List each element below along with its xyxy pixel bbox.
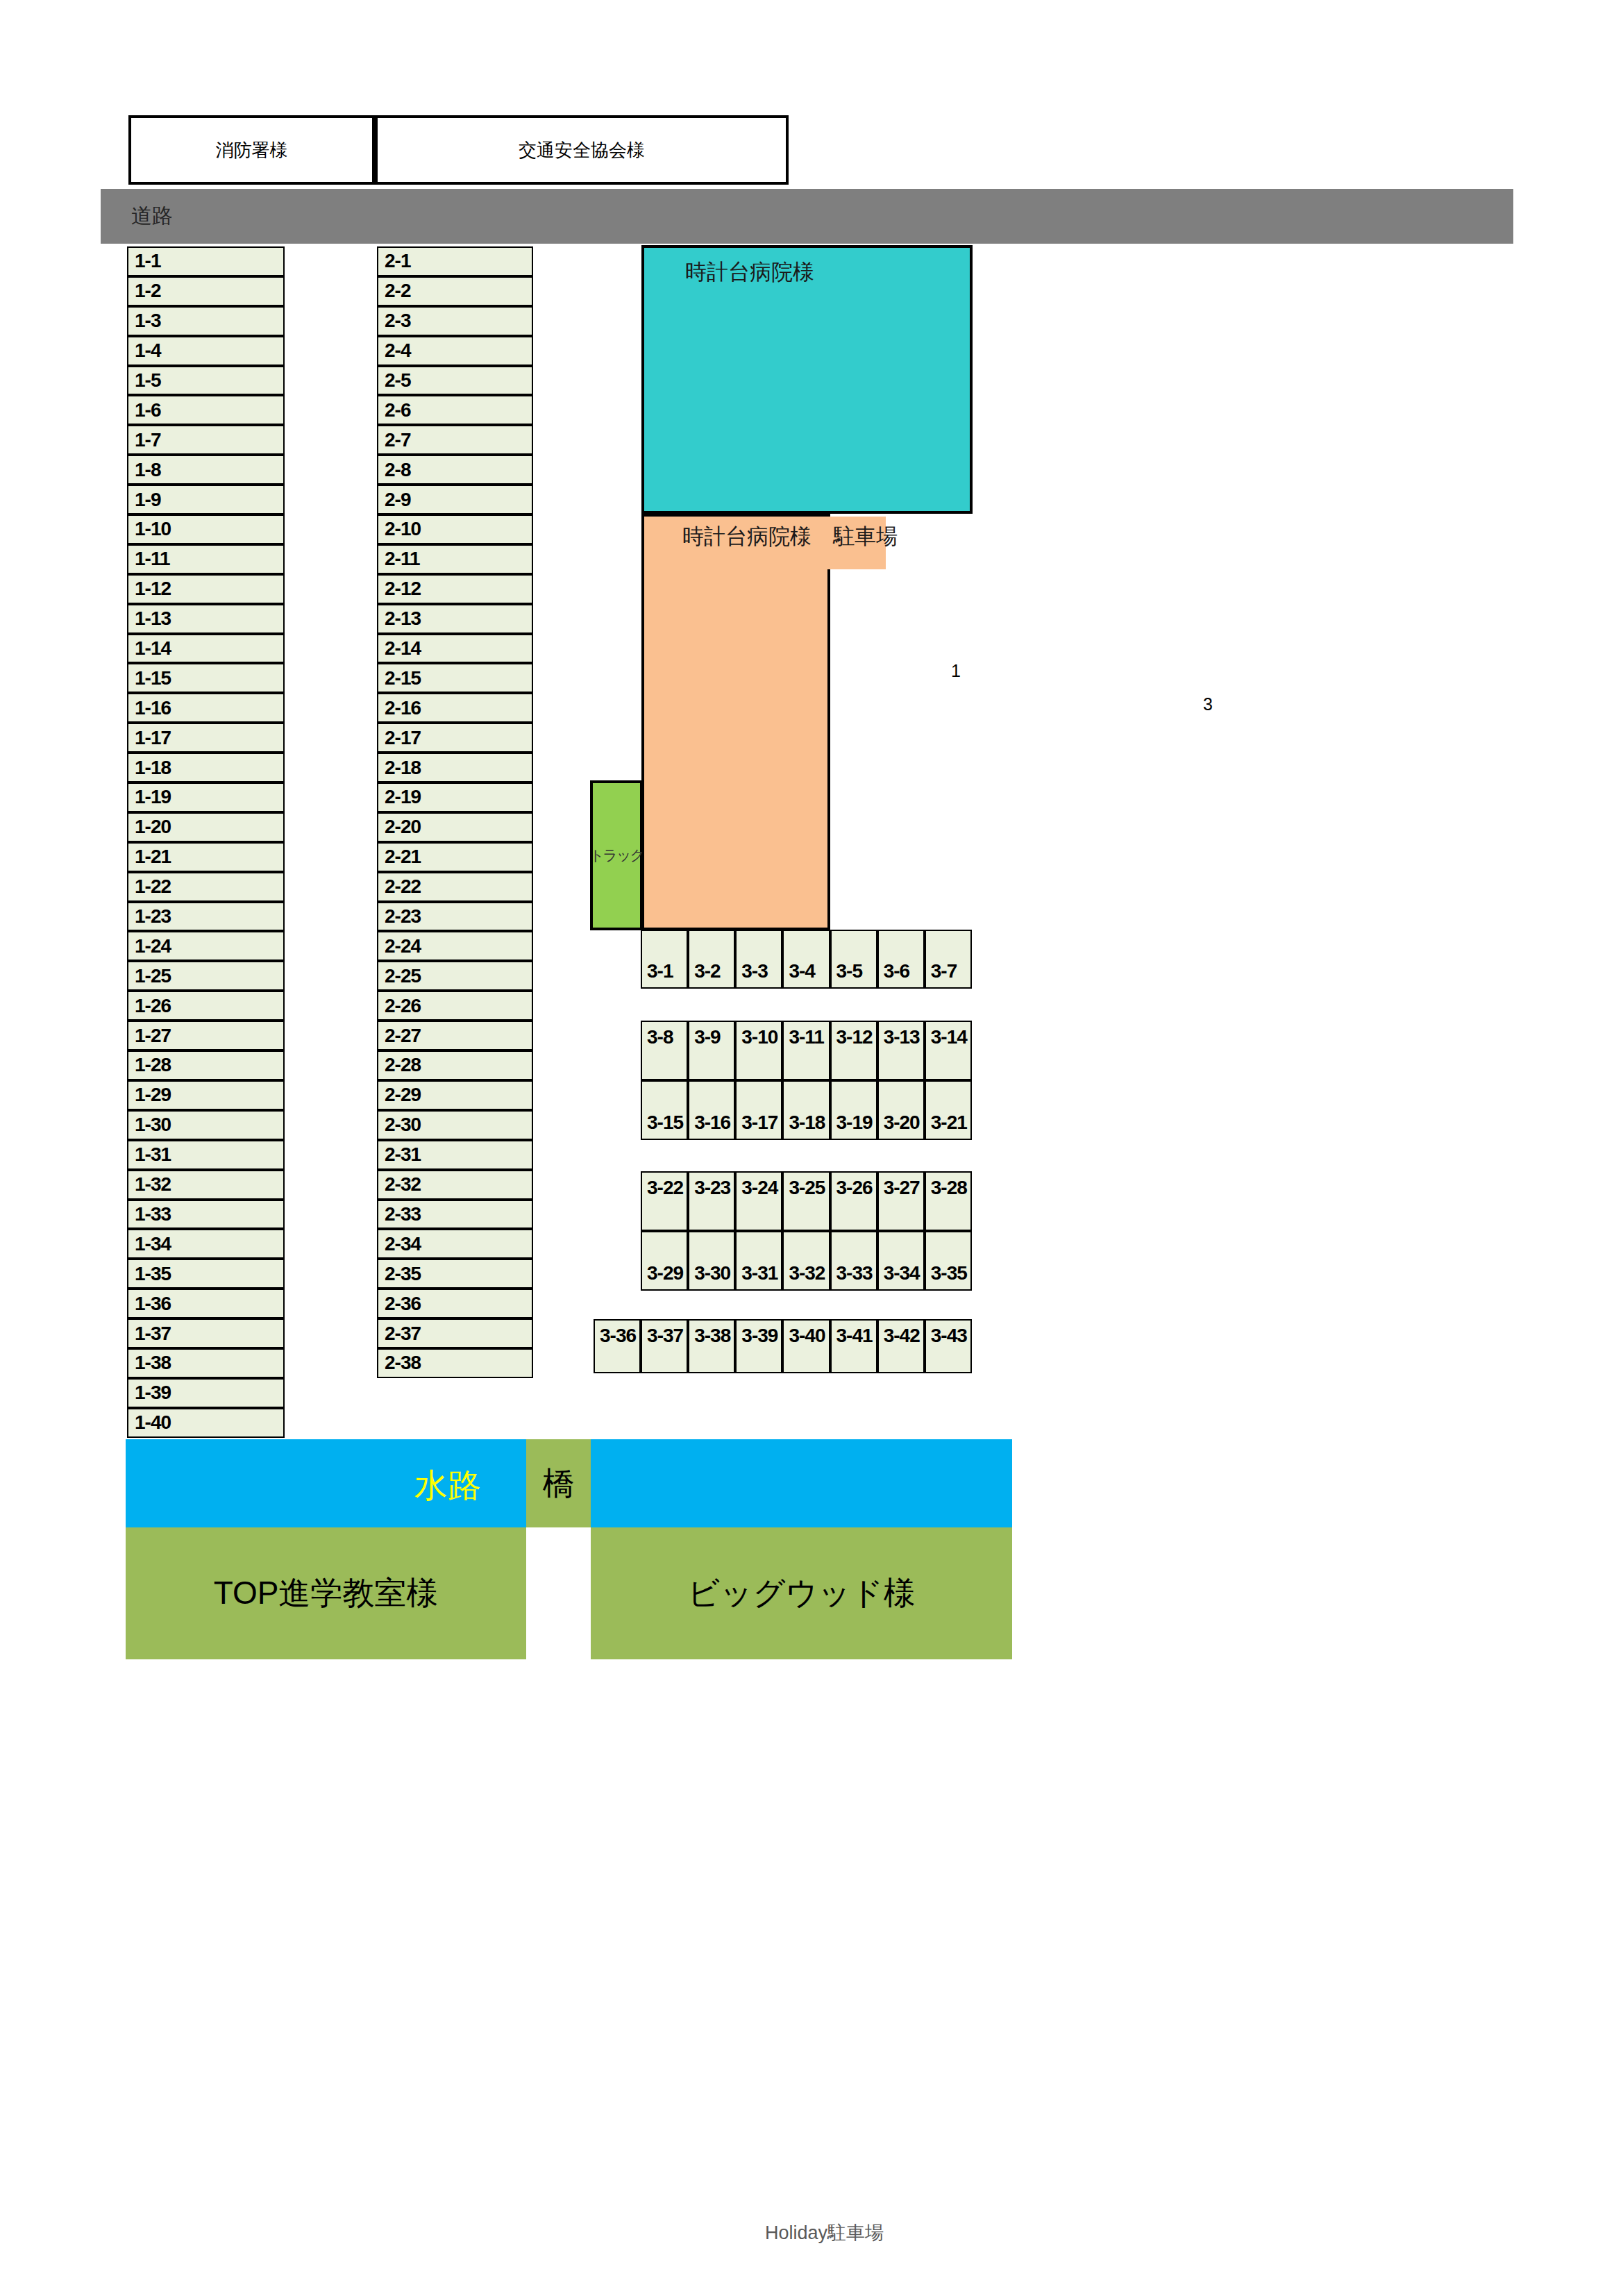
parking-stall: 1-18 <box>127 753 285 782</box>
parking-stall: 1-21 <box>127 842 285 872</box>
fire-station-box: 消防署様 <box>128 115 375 185</box>
parking-stall: 3-4 <box>782 930 830 989</box>
parking-stall: 1-17 <box>127 723 285 753</box>
parking-stall: 2-21 <box>377 842 533 872</box>
parking-stall: 2-28 <box>377 1050 533 1080</box>
parking-stall: 2-15 <box>377 663 533 693</box>
parking-stall: 2-9 <box>377 485 533 514</box>
parking-stall: 3-17 <box>735 1080 782 1140</box>
hospital-building-label: 時計台病院様 <box>685 258 814 287</box>
parking-stall: 1-6 <box>127 395 285 425</box>
parking-stall: 3-18 <box>782 1080 830 1140</box>
parking-stall: 2-27 <box>377 1021 533 1050</box>
parking-stall: 2-17 <box>377 723 533 753</box>
parking-stall: 2-24 <box>377 931 533 961</box>
parking-stall: 2-31 <box>377 1140 533 1170</box>
lot3-block-c: 3-223-233-243-253-263-273-28 3-293-303-3… <box>641 1171 972 1291</box>
parking-stall: 3-6 <box>877 930 925 989</box>
parking-stall: 2-18 <box>377 753 533 782</box>
hospital-building: 時計台病院様 <box>641 245 973 514</box>
parking-stall: 1-3 <box>127 306 285 336</box>
parking-stall: 2-32 <box>377 1170 533 1200</box>
parking-stall: 3-16 <box>688 1080 735 1140</box>
bridge-label: 橋 <box>543 1462 575 1505</box>
parking-stall: 3-30 <box>688 1231 735 1291</box>
parking-stall: 3-40 <box>782 1319 830 1373</box>
parking-stall: 2-13 <box>377 604 533 634</box>
stray-number-1: 1 <box>951 661 961 681</box>
parking-stall: 2-20 <box>377 812 533 842</box>
parking-stall: 1-13 <box>127 604 285 634</box>
parking-stall: 2-33 <box>377 1200 533 1230</box>
parking-stall: 1-14 <box>127 634 285 664</box>
road-bar: 道路 <box>101 189 1513 244</box>
parking-stall: 3-39 <box>735 1319 782 1373</box>
traffic-safety-label: 交通安全協会様 <box>519 138 645 162</box>
parking-stall: 1-1 <box>127 246 285 276</box>
parking-stall: 1-9 <box>127 485 285 514</box>
parking-stall: 1-27 <box>127 1021 285 1050</box>
traffic-safety-box: 交通安全協会様 <box>375 115 789 185</box>
parking-stall: 2-6 <box>377 395 533 425</box>
parking-stall: 1-36 <box>127 1289 285 1318</box>
parking-stall: 3-41 <box>830 1319 877 1373</box>
parking-stall: 3-38 <box>688 1319 735 1373</box>
parking-stall: 3-12 <box>830 1021 877 1080</box>
parking-map: 消防署様 交通安全協会様 道路 1-11-21-31-41-51-61-71-8… <box>0 0 1623 2296</box>
bridge: 橋 <box>526 1439 591 1527</box>
parking-stall: 2-38 <box>377 1348 533 1378</box>
parking-stall: 1-33 <box>127 1200 285 1230</box>
parking-stall: 3-21 <box>925 1080 972 1140</box>
hospital-parking-label-wrap: 時計台病院様 駐車場 <box>641 514 886 569</box>
parking-stall: 1-38 <box>127 1348 285 1378</box>
parking-stall: 3-10 <box>735 1021 782 1080</box>
parking-stall: 2-4 <box>377 336 533 366</box>
parking-stall: 1-24 <box>127 931 285 961</box>
parking-stall: 1-11 <box>127 544 285 574</box>
parking-stall: 1-20 <box>127 812 285 842</box>
top-school-label: TOP進学教室様 <box>214 1572 439 1615</box>
parking-stall: 1-37 <box>127 1318 285 1348</box>
parking-stall: 3-3 <box>735 930 782 989</box>
parking-stall: 2-19 <box>377 782 533 812</box>
parking-stall: 1-5 <box>127 366 285 396</box>
hospital-parking-label: 時計台病院様 駐車場 <box>682 522 898 551</box>
parking-stall: 1-32 <box>127 1170 285 1200</box>
parking-stall: 3-1 <box>641 930 688 989</box>
parking-stall: 2-22 <box>377 872 533 902</box>
parking-stall: 2-10 <box>377 514 533 544</box>
parking-stall: 2-30 <box>377 1110 533 1140</box>
parking-stall: 1-16 <box>127 693 285 723</box>
parking-stall: 2-8 <box>377 455 533 485</box>
lot3-row-c-bottom: 3-293-303-313-323-333-343-35 <box>641 1231 972 1291</box>
parking-stall: 1-8 <box>127 455 285 485</box>
parking-stall: 2-14 <box>377 634 533 664</box>
parking-stall: 3-29 <box>641 1231 688 1291</box>
parking-stall: 1-31 <box>127 1140 285 1170</box>
bigwood-box: ビッグウッド様 <box>591 1527 1012 1659</box>
parking-stall: 1-4 <box>127 336 285 366</box>
parking-stall: 3-7 <box>925 930 972 989</box>
parking-stall: 2-25 <box>377 961 533 991</box>
parking-stall: 3-14 <box>925 1021 972 1080</box>
parking-stall: 2-7 <box>377 425 533 455</box>
parking-stall: 3-13 <box>877 1021 925 1080</box>
parking-stall: 1-40 <box>127 1408 285 1438</box>
parking-stall: 3-35 <box>925 1231 972 1291</box>
parking-stall: 3-19 <box>830 1080 877 1140</box>
parking-stall: 2-35 <box>377 1259 533 1289</box>
parking-stall: 3-43 <box>925 1319 972 1373</box>
parking-stall: 2-29 <box>377 1080 533 1110</box>
parking-stall: 3-8 <box>641 1021 688 1080</box>
parking-column-1: 1-11-21-31-41-51-61-71-81-91-101-111-121… <box>127 246 285 1438</box>
top-school-box: TOP進学教室様 <box>126 1527 526 1659</box>
hospital-parking-lot <box>641 514 830 930</box>
parking-stall: 1-28 <box>127 1050 285 1080</box>
parking-stall: 2-36 <box>377 1289 533 1318</box>
lot3-block-b: 3-83-93-103-113-123-133-14 3-153-163-173… <box>641 1021 972 1140</box>
parking-stall: 2-37 <box>377 1318 533 1348</box>
waterway-label: 水路 <box>414 1464 481 1508</box>
parking-stall: 3-2 <box>688 930 735 989</box>
holiday-parking-note: Holiday駐車場 <box>765 2220 884 2245</box>
lot3-row-c-top: 3-223-233-243-253-263-273-28 <box>641 1171 972 1231</box>
parking-stall: 3-27 <box>877 1171 925 1231</box>
truck-label: トラック <box>589 846 644 865</box>
lot3-row-d: 3-363-373-383-393-403-413-423-43 <box>594 1319 972 1373</box>
parking-stall: 3-33 <box>830 1231 877 1291</box>
stray-number-3: 3 <box>1203 694 1213 714</box>
parking-stall: 3-32 <box>782 1231 830 1291</box>
parking-stall: 1-39 <box>127 1378 285 1408</box>
parking-stall: 3-24 <box>735 1171 782 1231</box>
parking-stall: 3-42 <box>877 1319 925 1373</box>
parking-stall: 2-34 <box>377 1229 533 1259</box>
parking-stall: 2-1 <box>377 246 533 276</box>
parking-stall: 1-15 <box>127 663 285 693</box>
parking-stall: 1-2 <box>127 276 285 306</box>
parking-stall: 3-23 <box>688 1171 735 1231</box>
parking-stall: 3-20 <box>877 1080 925 1140</box>
parking-stall: 3-11 <box>782 1021 830 1080</box>
parking-stall: 1-23 <box>127 902 285 932</box>
parking-stall: 2-3 <box>377 306 533 336</box>
parking-stall: 2-11 <box>377 544 533 574</box>
parking-stall: 3-22 <box>641 1171 688 1231</box>
parking-stall: 1-34 <box>127 1229 285 1259</box>
parking-stall: 1-26 <box>127 991 285 1021</box>
lot3-row-b-bottom: 3-153-163-173-183-193-203-21 <box>641 1080 972 1140</box>
parking-stall: 1-22 <box>127 872 285 902</box>
parking-stall: 3-25 <box>782 1171 830 1231</box>
parking-stall: 1-25 <box>127 961 285 991</box>
parking-stall: 2-5 <box>377 366 533 396</box>
parking-stall: 2-26 <box>377 991 533 1021</box>
road-label: 道路 <box>131 202 173 231</box>
parking-stall: 3-31 <box>735 1231 782 1291</box>
parking-stall: 3-28 <box>925 1171 972 1231</box>
parking-stall: 3-37 <box>641 1319 688 1373</box>
parking-stall: 3-15 <box>641 1080 688 1140</box>
parking-stall: 1-12 <box>127 574 285 604</box>
parking-stall: 1-7 <box>127 425 285 455</box>
lot3-row-b-top: 3-83-93-103-113-123-133-14 <box>641 1021 972 1080</box>
parking-stall: 2-2 <box>377 276 533 306</box>
parking-stall: 1-29 <box>127 1080 285 1110</box>
parking-stall: 1-30 <box>127 1110 285 1140</box>
parking-stall: 3-36 <box>594 1319 641 1373</box>
parking-stall: 1-10 <box>127 514 285 544</box>
lot3-row-a: 3-13-23-33-43-53-63-7 <box>641 930 972 989</box>
truck-space: トラック <box>590 780 643 930</box>
parking-stall: 2-12 <box>377 574 533 604</box>
parking-stall: 3-9 <box>688 1021 735 1080</box>
fire-station-label: 消防署様 <box>216 138 288 162</box>
parking-stall: 1-35 <box>127 1259 285 1289</box>
parking-stall: 3-26 <box>830 1171 877 1231</box>
parking-stall: 3-5 <box>830 930 877 989</box>
parking-stall: 1-19 <box>127 782 285 812</box>
parking-column-2: 2-12-22-32-42-52-62-72-82-92-102-112-122… <box>377 246 533 1378</box>
parking-stall: 2-23 <box>377 902 533 932</box>
parking-stall: 2-16 <box>377 693 533 723</box>
bigwood-label: ビッグウッド様 <box>687 1572 915 1615</box>
parking-stall: 3-34 <box>877 1231 925 1291</box>
